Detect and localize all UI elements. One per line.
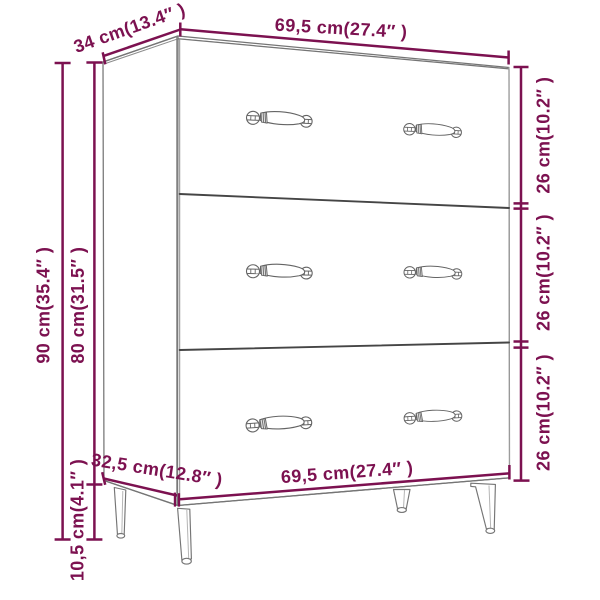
svg-text:26 cm(10.2″ ): 26 cm(10.2″ ) xyxy=(534,77,554,194)
svg-text:80 cm(31.5″ ): 80 cm(31.5″ ) xyxy=(68,247,88,364)
svg-text:10,5 cm(4.1″ ): 10,5 cm(4.1″ ) xyxy=(67,459,87,581)
svg-text:90 cm(35.4″ ): 90 cm(35.4″ ) xyxy=(34,247,54,364)
svg-text:26 cm(10.2″ ): 26 cm(10.2″ ) xyxy=(534,214,554,331)
svg-text:26 cm(10.2″ ): 26 cm(10.2″ ) xyxy=(534,354,554,471)
